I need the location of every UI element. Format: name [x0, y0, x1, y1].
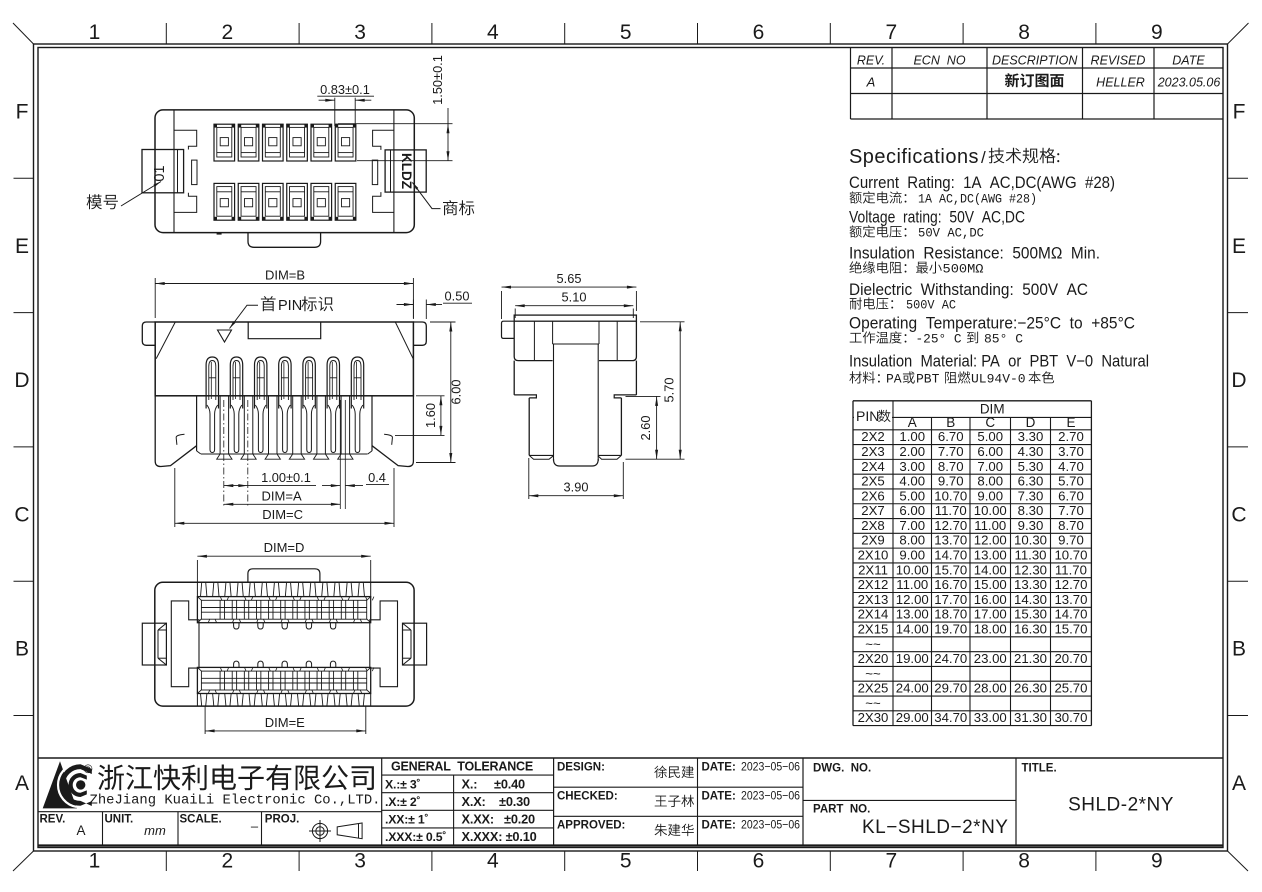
- svg-text:9.70: 9.70: [938, 474, 964, 489]
- svg-text:33.00: 33.00: [974, 710, 1007, 725]
- svg-text:3.00: 3.00: [899, 459, 925, 474]
- svg-text:3.70: 3.70: [1058, 444, 1084, 459]
- svg-text:7.30: 7.30: [1018, 488, 1044, 503]
- svg-text:11.00: 11.00: [896, 577, 928, 592]
- svg-text:13.70: 13.70: [1054, 592, 1087, 607]
- svg-text:13.00: 13.00: [974, 548, 1007, 563]
- svg-text:2023−05−06: 2023−05−06: [741, 789, 800, 803]
- svg-text:5: 5: [620, 21, 632, 44]
- svg-text:PA: PA: [886, 372, 902, 387]
- svg-text:5.70: 5.70: [662, 378, 677, 403]
- svg-text:15.70: 15.70: [934, 562, 967, 577]
- svg-text:10.00: 10.00: [896, 562, 929, 577]
- svg-text:12.70: 12.70: [934, 518, 967, 533]
- svg-text:14.70: 14.70: [934, 548, 967, 563]
- svg-text:16.70: 16.70: [934, 577, 967, 592]
- svg-text:PART NO.: PART NO.: [813, 804, 870, 816]
- svg-text:11.00: 11.00: [974, 518, 1006, 533]
- svg-text:E: E: [1066, 415, 1075, 430]
- svg-text:85° C: 85° C: [984, 332, 1023, 347]
- svg-text:DIM=C: DIM=C: [262, 507, 303, 522]
- svg-text:Current Rating: 1A AC,DC(AW: Current Rating: 1A AC,DC(AWG #28): [849, 174, 1115, 192]
- svg-text:2.70: 2.70: [1058, 429, 1084, 444]
- svg-text:UNIT.: UNIT.: [105, 814, 134, 826]
- svg-text:7.70: 7.70: [938, 444, 964, 459]
- svg-text:2X9: 2X9: [861, 533, 884, 548]
- svg-text:D: D: [14, 369, 29, 392]
- svg-text:9.70: 9.70: [1058, 533, 1084, 548]
- svg-text:23.00: 23.00: [974, 651, 1007, 666]
- svg-text:5.65: 5.65: [557, 271, 582, 286]
- svg-text:B: B: [15, 638, 29, 661]
- svg-text:9.30: 9.30: [1018, 518, 1044, 533]
- svg-text:PIN: PIN: [856, 408, 879, 424]
- svg-text:15.00: 15.00: [974, 577, 1007, 592]
- svg-text:~~: ~~: [865, 666, 881, 681]
- svg-text:11.70: 11.70: [935, 503, 967, 518]
- svg-text:DATE:: DATE:: [702, 762, 736, 774]
- svg-text:DIM=B: DIM=B: [265, 268, 305, 283]
- svg-text:2X14: 2X14: [858, 607, 889, 622]
- svg-text:01: 01: [152, 165, 168, 181]
- svg-text:TITLE.: TITLE.: [1022, 763, 1057, 775]
- svg-text:15.70: 15.70: [1054, 621, 1087, 636]
- svg-text:6: 6: [753, 850, 765, 873]
- svg-text:E: E: [15, 235, 29, 258]
- svg-text:5.10: 5.10: [562, 290, 587, 305]
- svg-text:A: A: [908, 415, 917, 430]
- svg-text:DIM=D: DIM=D: [264, 540, 305, 555]
- svg-text:APPROVED:: APPROVED:: [557, 820, 625, 832]
- svg-text:KLDZ: KLDZ: [399, 153, 414, 189]
- svg-text:GENERAL TOLERANCE: GENERAL TOLERANCE: [391, 760, 533, 774]
- svg-text:/: /: [981, 148, 986, 167]
- svg-text:14.00: 14.00: [974, 562, 1007, 577]
- svg-text:2X6: 2X6: [861, 488, 884, 503]
- svg-text:12.00: 12.00: [974, 533, 1007, 548]
- svg-text:19.00: 19.00: [896, 651, 929, 666]
- svg-text:2X15: 2X15: [858, 621, 889, 636]
- svg-text:9.00: 9.00: [899, 548, 925, 563]
- svg-text:-25° C: -25° C: [916, 332, 962, 347]
- svg-text:10.30: 10.30: [1014, 533, 1047, 548]
- svg-text:3.90: 3.90: [564, 480, 589, 495]
- svg-text:9.00: 9.00: [977, 488, 1003, 503]
- svg-text:2: 2: [221, 21, 233, 44]
- svg-text:7: 7: [885, 21, 897, 44]
- svg-text:X.XXX: ±0.10: X.XXX: ±0.10: [462, 829, 537, 844]
- svg-text:D: D: [1026, 415, 1036, 430]
- svg-text:X.: ±0.40: X.: ±0.40: [462, 776, 526, 791]
- svg-text:A: A: [866, 75, 876, 90]
- svg-text:X.:± 3˚: X.:± 3˚: [385, 777, 421, 791]
- svg-text:A: A: [15, 772, 29, 795]
- svg-text:DATE:: DATE:: [702, 820, 736, 832]
- svg-text:2X20: 2X20: [858, 651, 889, 666]
- svg-text:1.50±0.1: 1.50±0.1: [430, 55, 445, 105]
- svg-text:19.70: 19.70: [934, 621, 967, 636]
- svg-text:0.50: 0.50: [445, 289, 470, 304]
- svg-text:UL94V-0: UL94V-0: [971, 372, 1026, 387]
- svg-text:1: 1: [89, 850, 101, 873]
- svg-text:Voltage rating: 50V AC,DC: Voltage rating: 50V AC,DC: [849, 209, 1025, 227]
- svg-text:50V AC,DC: 50V AC,DC: [918, 226, 984, 241]
- svg-text:F: F: [16, 101, 29, 124]
- svg-text:4: 4: [487, 850, 499, 873]
- svg-text:15.30: 15.30: [1014, 607, 1047, 622]
- svg-text:10.00: 10.00: [974, 503, 1007, 518]
- svg-text:C: C: [14, 503, 29, 526]
- svg-text:6.00: 6.00: [977, 444, 1003, 459]
- svg-text:2X2: 2X2: [861, 429, 884, 444]
- svg-text:4.00: 4.00: [899, 474, 925, 489]
- svg-text:X.X: ±0.30: X.X: ±0.30: [462, 794, 531, 809]
- svg-text:~~: ~~: [865, 695, 881, 710]
- svg-text:2X12: 2X12: [858, 577, 889, 592]
- svg-text:13.70: 13.70: [934, 533, 967, 548]
- svg-text:.XX:± 1˚: .XX:± 1˚: [385, 813, 429, 827]
- svg-text:13.30: 13.30: [1014, 577, 1047, 592]
- svg-text:DIM=E: DIM=E: [265, 715, 305, 730]
- svg-text:DIM=A: DIM=A: [262, 488, 302, 503]
- svg-text:16.30: 16.30: [1014, 621, 1047, 636]
- svg-text:20.70: 20.70: [1054, 651, 1087, 666]
- svg-text:Insulation Resistance: 500MΩ: Insulation Resistance: 500MΩ Min.: [849, 245, 1100, 263]
- svg-text:5: 5: [620, 850, 632, 873]
- svg-text:4: 4: [487, 21, 499, 44]
- svg-text:CHECKED:: CHECKED:: [557, 791, 618, 803]
- svg-text:14.30: 14.30: [1014, 592, 1047, 607]
- svg-text:ZheJiang KuaiLi Electronic Co.: ZheJiang KuaiLi Electronic Co.,LTD.: [90, 794, 381, 809]
- svg-text:5.30: 5.30: [1018, 459, 1044, 474]
- svg-text:B: B: [1232, 638, 1246, 661]
- svg-text:11.70: 11.70: [1055, 562, 1087, 577]
- svg-text:6.70: 6.70: [1058, 488, 1084, 503]
- svg-text:29.70: 29.70: [934, 681, 967, 696]
- svg-text:500MΩ: 500MΩ: [943, 262, 984, 277]
- svg-text:.XXX:± 0.5˚: .XXX:± 0.5˚: [385, 830, 446, 844]
- svg-text:PBT: PBT: [916, 372, 940, 387]
- svg-text:SHLD-2*NY: SHLD-2*NY: [1068, 795, 1174, 816]
- svg-text:5.70: 5.70: [1058, 474, 1084, 489]
- svg-text:REV.: REV.: [857, 54, 885, 68]
- svg-text:DESCRIPTION: DESCRIPTION: [992, 54, 1078, 68]
- svg-text:DATE:: DATE:: [702, 791, 736, 803]
- svg-text:24.70: 24.70: [934, 651, 967, 666]
- svg-text:17.70: 17.70: [934, 592, 967, 607]
- svg-text:7.00: 7.00: [977, 459, 1003, 474]
- svg-text:11.30: 11.30: [1014, 548, 1046, 563]
- svg-text:8.00: 8.00: [977, 474, 1003, 489]
- svg-text:A: A: [1232, 772, 1246, 795]
- svg-text:8.70: 8.70: [1058, 518, 1084, 533]
- svg-text:2X25: 2X25: [858, 681, 889, 696]
- svg-text:2X3: 2X3: [861, 444, 884, 459]
- svg-text:12.70: 12.70: [1054, 577, 1087, 592]
- svg-text:8: 8: [1018, 21, 1030, 44]
- svg-text:6.00: 6.00: [899, 503, 925, 518]
- svg-text:1.60: 1.60: [423, 403, 438, 428]
- svg-text:9: 9: [1151, 850, 1163, 873]
- svg-text:7: 7: [885, 850, 897, 873]
- svg-text:10.70: 10.70: [1054, 548, 1087, 563]
- svg-text:2023.05.06: 2023.05.06: [1157, 76, 1221, 90]
- svg-text:mm: mm: [144, 823, 166, 838]
- svg-text:2X30: 2X30: [858, 710, 889, 725]
- svg-text:Specifications: Specifications: [849, 145, 979, 168]
- svg-text:.X:± 2˚: .X:± 2˚: [385, 795, 421, 809]
- svg-text:6.30: 6.30: [1018, 474, 1044, 489]
- svg-text:31.30: 31.30: [1014, 710, 1047, 725]
- svg-text:2.00: 2.00: [899, 444, 925, 459]
- svg-text:7.00: 7.00: [899, 518, 925, 533]
- svg-text:18.70: 18.70: [934, 607, 967, 622]
- svg-text:28.00: 28.00: [974, 681, 1007, 696]
- svg-text:18.00: 18.00: [974, 621, 1007, 636]
- svg-text:6: 6: [753, 21, 765, 44]
- svg-text:6.00: 6.00: [449, 380, 464, 405]
- svg-text:8.30: 8.30: [1018, 503, 1044, 518]
- svg-text:0.83±0.1: 0.83±0.1: [320, 82, 370, 97]
- svg-text:–: –: [251, 819, 259, 834]
- svg-text:E: E: [1232, 235, 1246, 258]
- svg-text:2023−05−06: 2023−05−06: [741, 818, 800, 832]
- svg-text:A: A: [76, 823, 85, 838]
- svg-text:D: D: [1231, 369, 1246, 392]
- svg-text:3.30: 3.30: [1018, 429, 1044, 444]
- svg-text:HELLER: HELLER: [1096, 76, 1145, 90]
- svg-text:2X10: 2X10: [858, 548, 889, 563]
- svg-text:3: 3: [354, 21, 366, 44]
- svg-text:1: 1: [89, 21, 101, 44]
- svg-text:12.30: 12.30: [1014, 562, 1047, 577]
- svg-text:1A AC,DC(AWG #28): 1A AC,DC(AWG #28): [918, 192, 1037, 207]
- svg-text:8.70: 8.70: [938, 459, 964, 474]
- svg-text:14.00: 14.00: [896, 621, 929, 636]
- svg-text:2: 2: [221, 850, 233, 873]
- svg-text:5.00: 5.00: [977, 429, 1003, 444]
- svg-text:KL−SHLD−2*NY: KL−SHLD−2*NY: [862, 817, 1008, 838]
- svg-text:Operating Temperature:−25°C: Operating Temperature:−25°C to +85°C: [849, 315, 1135, 333]
- svg-text:C: C: [985, 415, 995, 430]
- svg-text:1.00: 1.00: [899, 429, 925, 444]
- svg-text:5.00: 5.00: [899, 488, 925, 503]
- svg-text:30.70: 30.70: [1054, 710, 1087, 725]
- svg-text:B: B: [946, 415, 955, 430]
- svg-text:26.30: 26.30: [1014, 681, 1047, 696]
- svg-text:14.70: 14.70: [1054, 607, 1087, 622]
- svg-text:6.70: 6.70: [938, 429, 964, 444]
- svg-text:Dielectric Withstanding: 500: Dielectric Withstanding: 500V AC: [849, 281, 1088, 299]
- svg-text:DWG. NO.: DWG. NO.: [813, 763, 871, 775]
- svg-text:500V AC: 500V AC: [906, 298, 956, 313]
- svg-text:4.70: 4.70: [1058, 459, 1084, 474]
- svg-text:Insulation Material: PA or: Insulation Material: PA or PBT V−0 Natur…: [849, 353, 1149, 371]
- svg-text:SCALE.: SCALE.: [180, 814, 222, 826]
- svg-text:8: 8: [1018, 850, 1030, 873]
- svg-text:X.XX: ±0.20: X.XX: ±0.20: [462, 812, 536, 827]
- svg-text:34.70: 34.70: [934, 710, 967, 725]
- svg-text:0.4: 0.4: [368, 470, 386, 485]
- svg-text:29.00: 29.00: [896, 710, 929, 725]
- svg-text:2X13: 2X13: [858, 592, 889, 607]
- svg-text:2023−05−06: 2023−05−06: [741, 760, 800, 774]
- svg-text:REV.: REV.: [40, 814, 66, 826]
- svg-text:PIN: PIN: [278, 298, 302, 314]
- svg-text:DESIGN:: DESIGN:: [557, 762, 605, 774]
- svg-text:9: 9: [1151, 21, 1163, 44]
- svg-text:25.70: 25.70: [1054, 681, 1087, 696]
- svg-text:8.00: 8.00: [899, 533, 925, 548]
- svg-text:2X4: 2X4: [861, 459, 884, 474]
- svg-text:1.00±0.1: 1.00±0.1: [261, 470, 311, 485]
- svg-text:2X5: 2X5: [861, 474, 884, 489]
- svg-text:~~: ~~: [865, 636, 881, 651]
- svg-text:REVISED: REVISED: [1091, 54, 1146, 68]
- svg-text:®: ®: [84, 762, 93, 776]
- svg-text:17.00: 17.00: [974, 607, 1007, 622]
- svg-text:7.70: 7.70: [1058, 503, 1084, 518]
- svg-text:C: C: [1231, 503, 1246, 526]
- svg-text:2.60: 2.60: [638, 416, 653, 441]
- svg-text:2X8: 2X8: [861, 518, 884, 533]
- svg-text:10.70: 10.70: [934, 488, 967, 503]
- svg-text:21.30: 21.30: [1014, 651, 1047, 666]
- svg-text:16.00: 16.00: [974, 592, 1007, 607]
- svg-text:2X7: 2X7: [861, 503, 884, 518]
- svg-text:ECN NO: ECN NO: [913, 54, 965, 68]
- svg-text:2X11: 2X11: [858, 562, 888, 577]
- svg-text:3: 3: [354, 850, 366, 873]
- svg-text:12.00: 12.00: [896, 592, 929, 607]
- svg-text:F: F: [1233, 101, 1246, 124]
- svg-text:4.30: 4.30: [1018, 444, 1044, 459]
- svg-text:PROJ.: PROJ.: [265, 814, 300, 826]
- svg-text:13.00: 13.00: [896, 607, 929, 622]
- svg-text:24.00: 24.00: [896, 681, 929, 696]
- svg-text:DATE: DATE: [1172, 54, 1205, 68]
